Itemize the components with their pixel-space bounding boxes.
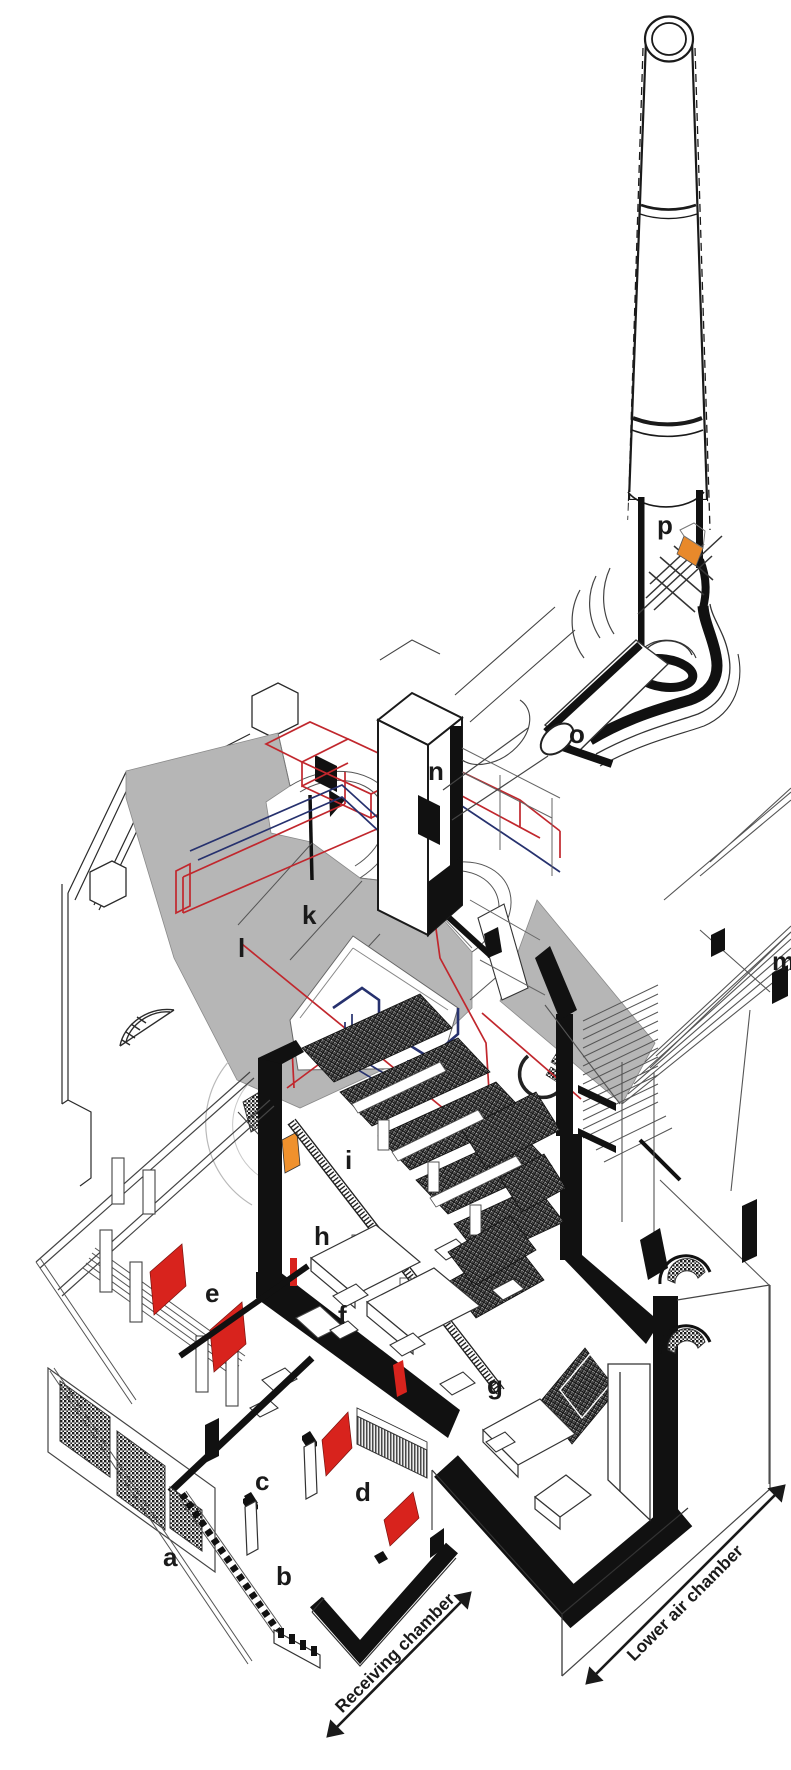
- svg-text:n: n: [428, 756, 444, 786]
- svg-text:h: h: [314, 1221, 330, 1251]
- svg-text:m: m: [772, 946, 791, 976]
- svg-text:a: a: [163, 1542, 178, 1572]
- svg-text:l: l: [238, 933, 245, 963]
- svg-text:k: k: [302, 900, 317, 930]
- svg-text:d: d: [355, 1477, 371, 1507]
- svg-text:f: f: [338, 1300, 347, 1330]
- svg-text:g: g: [487, 1370, 503, 1400]
- svg-text:p: p: [657, 510, 673, 540]
- svg-text:c: c: [255, 1466, 269, 1496]
- svg-text:e: e: [205, 1278, 219, 1308]
- svg-text:o: o: [569, 719, 585, 749]
- svg-text:b: b: [276, 1561, 292, 1591]
- svg-text:i: i: [345, 1145, 352, 1175]
